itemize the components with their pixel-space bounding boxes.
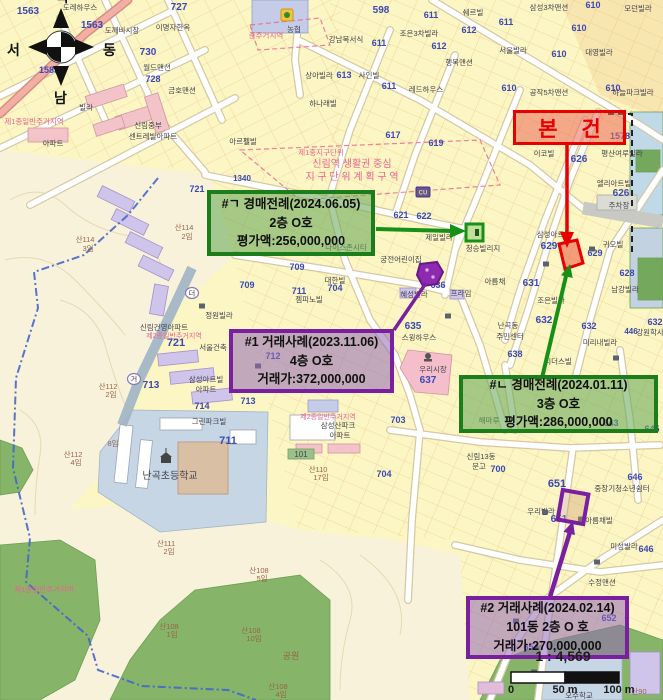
map-label: 지 구 단 위 계 획 구 역 bbox=[305, 170, 398, 183]
map-label: 사인빌 bbox=[359, 70, 380, 80]
nh-mart-icon bbox=[281, 9, 293, 21]
map-label: 평산여루빌라 bbox=[601, 148, 642, 158]
map-label: 아파트 bbox=[330, 430, 351, 440]
map-label: 주차장 bbox=[609, 200, 630, 210]
map-label: 646 bbox=[638, 544, 653, 554]
map-label: 아름채 bbox=[485, 276, 506, 286]
map-label: 젬피노빌 bbox=[295, 294, 323, 304]
map-label: 이명자한옥 bbox=[156, 22, 191, 32]
annotation-title: #ㄱ 경매전례(2024.06.05) bbox=[222, 195, 361, 214]
map-label: 삼성3차맨션 bbox=[530, 2, 569, 12]
map-label: 상아빌라 bbox=[305, 70, 333, 80]
map-label: 646 bbox=[627, 472, 642, 482]
map-label: 제일빌라 bbox=[425, 233, 453, 242]
map-label: 하나래빌 bbox=[309, 98, 337, 108]
map-label: 신림건영아파트 bbox=[140, 322, 188, 332]
building-icon bbox=[594, 560, 600, 565]
map-label: 4임 bbox=[275, 690, 286, 699]
map-label: 신림역 생활권 중심 bbox=[312, 157, 391, 170]
subject-annotation[interactable]: 본 건 bbox=[513, 110, 626, 145]
map-label: 612 bbox=[461, 25, 476, 35]
map-label: 신림중부 bbox=[134, 121, 162, 130]
map-label: 산114 bbox=[76, 234, 95, 244]
map-label: 조은3차빌라 bbox=[400, 29, 439, 38]
map-label: 제1종지구단위 bbox=[298, 147, 344, 157]
map-label: 아파트 bbox=[43, 138, 64, 148]
map-label: 4임 bbox=[70, 458, 81, 467]
building-icon bbox=[613, 356, 619, 361]
map-label: 610 bbox=[585, 0, 600, 10]
building-icon bbox=[542, 510, 548, 515]
map-label: 난곡동 bbox=[498, 321, 519, 330]
map-label: 1563 bbox=[17, 6, 40, 17]
sale-2-marker bbox=[558, 490, 589, 524]
map-label: 레드하우스 bbox=[409, 84, 444, 94]
annotation-floor: 101동 2층 O 호 bbox=[506, 618, 588, 637]
map-label: 제1종일반주거지역 bbox=[4, 116, 63, 126]
map-label: 공작5차맨션 bbox=[530, 87, 569, 97]
map-label: 17임 bbox=[313, 473, 328, 482]
map-label: 711 bbox=[219, 435, 237, 447]
map-label: 금호맨션 bbox=[168, 85, 196, 95]
map-label: 신림13동 bbox=[466, 452, 495, 461]
map-label: 611 bbox=[424, 10, 439, 20]
map-label: 대한빌 bbox=[325, 276, 346, 285]
annotation-floor: 3층 O호 bbox=[537, 395, 580, 414]
map-label: 1임 bbox=[166, 630, 177, 639]
road-badge-icon: 거 bbox=[128, 374, 141, 385]
map-label: 그린파크빌 bbox=[192, 416, 227, 426]
auction-1-marker bbox=[466, 224, 483, 241]
map-label: 628 bbox=[619, 268, 634, 278]
map-label: 610 bbox=[571, 23, 586, 33]
map-label: 721 bbox=[189, 184, 204, 194]
svg-text:CU: CU bbox=[419, 191, 428, 197]
cu-store-icon: CU bbox=[416, 187, 430, 197]
scale-tick-100: 100 m bbox=[596, 684, 642, 696]
map-label: 637 bbox=[420, 375, 437, 386]
map-label: 주민센터 bbox=[496, 331, 524, 341]
map-label: 721 bbox=[167, 337, 185, 349]
map-label: 612 bbox=[431, 41, 446, 51]
building-icon bbox=[589, 247, 595, 252]
compass-south-label: 남 bbox=[54, 88, 67, 108]
map-label: 714 bbox=[194, 401, 209, 411]
map-label: 611 bbox=[372, 38, 387, 48]
map-label: 611 bbox=[499, 17, 514, 27]
scale-ratio-label: 1 : 4,569 bbox=[498, 648, 628, 664]
map-label: 행복맨션 bbox=[445, 57, 473, 67]
map-label: 엘리아트빌 bbox=[597, 178, 632, 188]
map-label: 서울건축 bbox=[199, 342, 227, 352]
map-label: 도깨비시장 bbox=[105, 25, 140, 35]
map-label: 빌라 bbox=[79, 103, 93, 112]
map-label: 수정맨션 bbox=[588, 577, 616, 587]
map-label: 중장기청소년쉼터 bbox=[594, 483, 649, 493]
map-label: 서울빌라 bbox=[499, 46, 527, 55]
map-label: 월드맨션 bbox=[143, 62, 171, 72]
map-label: 704 bbox=[376, 469, 391, 479]
map-label: 632 bbox=[581, 321, 596, 331]
map-label: 632 bbox=[536, 315, 553, 326]
map-label: 귀오빌 bbox=[603, 239, 624, 249]
map-label: 프라임 bbox=[451, 289, 472, 298]
auction-2-annotation[interactable]: #ㄴ 경매전례(2024.01.11) 3층 O호 평가액:286,000,00… bbox=[459, 375, 658, 433]
map-label: 궁전어린이집 bbox=[380, 254, 421, 264]
compass-west-label: 서 bbox=[7, 40, 20, 60]
annotation-title: #2 거래사례(2024.02.14) bbox=[480, 599, 614, 618]
annotation-floor: 2층 O호 bbox=[269, 214, 312, 233]
map-label: 정원빌라 bbox=[205, 310, 233, 320]
map-label: 삼성산파크 bbox=[321, 420, 356, 430]
scale-bar bbox=[511, 672, 619, 683]
map-label: 제1종일반주거지역 bbox=[14, 584, 73, 594]
annotation-floor: 4층 O호 bbox=[290, 352, 333, 371]
map-label: 1563 bbox=[81, 20, 104, 31]
map-label: 632 bbox=[647, 317, 662, 327]
map-label: 709 bbox=[289, 262, 304, 272]
scale-tick-0: 0 bbox=[503, 684, 519, 696]
map-label: 아파트 bbox=[196, 384, 217, 394]
annotation-value: 평가액:286,000,000 bbox=[504, 413, 612, 432]
map-label: 613 bbox=[336, 70, 351, 80]
map-label: 631 bbox=[523, 278, 540, 289]
map-label: 713 bbox=[143, 380, 160, 391]
map-label: 문고 bbox=[472, 462, 486, 471]
map-label: 10임 bbox=[246, 634, 261, 643]
map-label: 101 bbox=[294, 450, 308, 459]
scale-tick-50: 50 m bbox=[545, 684, 585, 696]
map-label: 공원 bbox=[283, 651, 300, 661]
map-label: 727 bbox=[171, 2, 188, 13]
map-label: 611 bbox=[382, 81, 397, 91]
map-label: 617 bbox=[385, 130, 400, 140]
map-label: 626 bbox=[571, 154, 588, 165]
map-label: 619 bbox=[428, 138, 443, 148]
svg-text:더: 더 bbox=[189, 289, 195, 298]
map-label: 2임 bbox=[105, 390, 116, 399]
map-label: 제2종일반주거지역 bbox=[300, 412, 355, 421]
road-badge-icon: 더 bbox=[186, 288, 199, 299]
map-label: 2임 bbox=[181, 232, 192, 241]
sale-1-annotation[interactable]: #1 거래사례(2023.11.06) 4층 O호 거래가:372,000,00… bbox=[229, 329, 394, 393]
map-label: 629 bbox=[541, 241, 558, 252]
map-label: 8임 bbox=[107, 439, 118, 448]
building-icon bbox=[445, 314, 451, 319]
map-label: 709 bbox=[239, 280, 254, 290]
subject-label: 본 건 bbox=[538, 113, 609, 143]
compass-north-label: 북 bbox=[56, 0, 69, 7]
annotation-value: 평가액:256,000,000 bbox=[237, 232, 345, 251]
compass-east-label: 동 bbox=[103, 40, 116, 60]
map-label: 700 bbox=[490, 464, 505, 474]
map-label: 598 bbox=[373, 5, 390, 16]
map-label: 모던빌라 bbox=[624, 3, 652, 13]
map-label: 635 bbox=[405, 321, 422, 332]
map-label: 610 bbox=[501, 83, 516, 93]
map-label: 하늘파크빌라 bbox=[612, 87, 653, 97]
map-label: 삼성아트빌 bbox=[189, 374, 224, 384]
map-label: 남강빌라 bbox=[611, 284, 639, 294]
map-label: 스윙하우스 bbox=[402, 332, 437, 342]
map-label: 청승빌리지 bbox=[466, 244, 501, 253]
map-label: 아름채빌 bbox=[585, 515, 613, 525]
map-label: 2임 bbox=[163, 547, 174, 556]
map-label: 아르펠빌 bbox=[229, 136, 257, 146]
map-label: 713 bbox=[240, 396, 255, 406]
map-label: 쉐르빌 bbox=[463, 7, 484, 17]
map-label: 미리내빌라 bbox=[583, 338, 618, 347]
map-label: 강원학사 bbox=[636, 327, 663, 337]
annotation-value: 거래가:372,000,000 bbox=[257, 370, 365, 389]
building-icon bbox=[543, 262, 549, 267]
map-label: 626 bbox=[613, 188, 630, 199]
map-label: 730 bbox=[140, 47, 157, 58]
map-label: 638 bbox=[507, 349, 522, 359]
map-label: 5임 bbox=[256, 574, 267, 583]
map-label: 준주거지역 bbox=[249, 30, 284, 40]
map-screenshot: 1563도레하우스1563도깨비시장727이명자한옥730월드맨션728금호맨션… bbox=[0, 0, 663, 700]
auction-1-annotation[interactable]: #ㄱ 경매전례(2024.06.05) 2층 O호 평가액:256,000,00… bbox=[207, 190, 375, 256]
svg-text:거: 거 bbox=[131, 375, 137, 384]
map-label: 621 bbox=[393, 210, 408, 220]
map-label: 난곡초등학교 bbox=[142, 470, 197, 482]
map-label: 3임 bbox=[82, 244, 93, 253]
map-label: 622 bbox=[416, 211, 431, 221]
map-label: 이코빌 bbox=[534, 148, 555, 158]
map-label: 610 bbox=[551, 49, 566, 59]
subject-marker bbox=[559, 240, 583, 269]
map-label: 농협 bbox=[287, 24, 301, 34]
map-label: 1340 bbox=[233, 174, 251, 183]
map-label: 센트레빌아파트 bbox=[129, 131, 177, 141]
map-label: 대영빌라 bbox=[585, 47, 613, 57]
map-label: 산114 bbox=[175, 222, 194, 232]
map-label: 미성빌라 bbox=[610, 542, 638, 551]
map-label: 강남복서식 bbox=[329, 34, 364, 44]
map-label: 728 bbox=[145, 74, 160, 84]
annotation-title: #1 거래사례(2023.11.06) bbox=[245, 333, 379, 352]
map-label: 703 bbox=[390, 415, 405, 425]
building-icon bbox=[199, 304, 205, 309]
annotation-title: #ㄴ 경매전례(2024.01.11) bbox=[489, 376, 627, 395]
map-label: 우리시장 bbox=[419, 364, 447, 374]
